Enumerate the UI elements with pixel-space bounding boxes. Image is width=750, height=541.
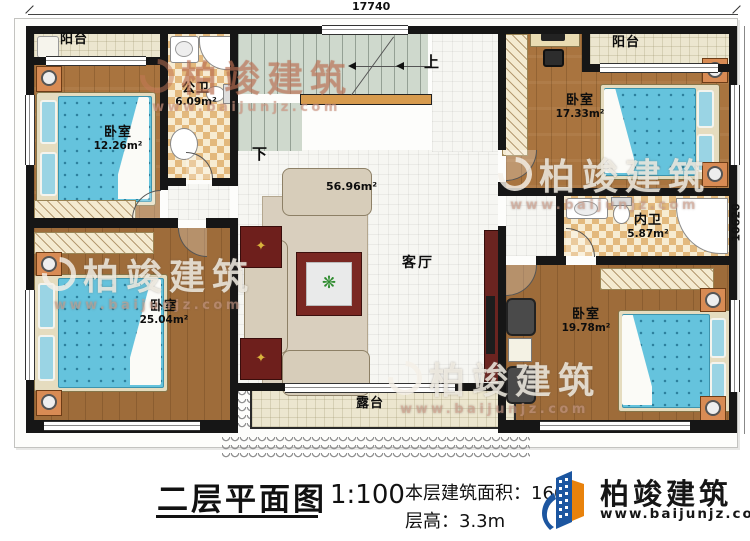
window xyxy=(600,63,718,73)
dimension-right-value: 10620 xyxy=(730,193,743,253)
wardrobe xyxy=(600,268,714,290)
brand-logo-icon xyxy=(536,466,596,536)
wall xyxy=(596,256,737,265)
plan-title: 二层平面图 xyxy=(157,474,327,519)
stairs-lower-flight xyxy=(238,103,302,151)
wall xyxy=(160,178,186,186)
dimension-top-value: 17740 xyxy=(352,0,390,13)
nightstand xyxy=(702,162,728,187)
window xyxy=(25,290,35,380)
wall xyxy=(455,383,506,391)
stair-arrow xyxy=(392,62,404,70)
nightstand xyxy=(36,66,62,92)
wall xyxy=(505,26,737,34)
window xyxy=(25,95,35,165)
bath-sink-bowl xyxy=(175,41,193,57)
wall xyxy=(498,188,737,196)
window xyxy=(44,421,200,431)
bed-sheet xyxy=(130,279,161,385)
bed-sheet xyxy=(622,315,652,405)
wall xyxy=(230,26,238,186)
dimension-tick-left xyxy=(25,5,33,13)
wall xyxy=(498,256,506,265)
dimension-right-line xyxy=(744,26,745,434)
stair-guide-line xyxy=(352,66,430,67)
wardrobe xyxy=(34,232,154,254)
room-label-bedroom-bottomleft: 卧室25.04m² xyxy=(124,300,204,326)
terrace-sliding-door xyxy=(285,383,455,393)
wall xyxy=(26,26,238,34)
nightstand xyxy=(36,390,62,416)
toilet-tank xyxy=(611,197,632,206)
window xyxy=(730,85,740,165)
brand-url: www.baijunjz.com xyxy=(600,506,750,522)
stairs-up-label: 上 xyxy=(424,54,439,71)
plan-scale: 1:100 xyxy=(330,480,405,510)
room-label-bedroom-topright: 卧室17.33m² xyxy=(540,94,620,120)
bed-pillow xyxy=(40,152,57,196)
stool xyxy=(543,49,564,67)
wall xyxy=(230,218,238,420)
armchair xyxy=(506,366,536,404)
dimension-tick-right xyxy=(732,5,740,13)
side-lamp-table xyxy=(508,338,532,362)
window xyxy=(46,56,146,66)
living-area-value: 56.96m² xyxy=(326,181,377,193)
room-label-terrace: 露台 xyxy=(356,397,384,412)
roof-tile-band xyxy=(222,437,530,459)
wardrobe xyxy=(34,200,136,220)
room-label-bedroom-bottomright: 卧室19.78m² xyxy=(546,308,626,334)
bed-pillow xyxy=(38,335,55,381)
hall-left-floor xyxy=(168,184,230,220)
balcony-basin xyxy=(37,36,59,58)
floor-height-text: 层高：3.3m xyxy=(405,507,505,533)
armchair xyxy=(506,298,536,336)
window xyxy=(322,25,408,35)
hall-upper-floor xyxy=(432,34,498,152)
window xyxy=(730,300,740,392)
wall xyxy=(498,26,506,150)
room-label-living: 客厅 xyxy=(402,256,434,272)
nightstand xyxy=(36,252,62,276)
stair-arrow xyxy=(344,62,356,70)
floor-plan-page: 17740 10620 xyxy=(0,0,750,541)
roof-tile-left-strip xyxy=(238,391,250,431)
wall xyxy=(556,196,564,256)
stair-handrail xyxy=(300,94,432,105)
room-label-balcony-right: 阳台 xyxy=(612,36,640,51)
wall xyxy=(536,256,566,265)
bed-pillow xyxy=(710,318,726,358)
room-label-balcony-left: 阳台 xyxy=(60,33,88,48)
dressing-table-mirror xyxy=(541,33,565,41)
window xyxy=(540,421,690,431)
stairs-down-label: 下 xyxy=(252,146,267,163)
hall-right-floor xyxy=(506,196,556,256)
side-table: ✦ xyxy=(240,338,282,380)
bed-pillow xyxy=(40,100,57,144)
room-label-inner-bath: 内卫5.87m² xyxy=(608,214,688,240)
room-label-public-bath: 公卫6.09m² xyxy=(165,82,227,108)
nightstand xyxy=(700,396,726,421)
wall xyxy=(26,218,178,228)
dimension-top-line xyxy=(28,14,738,15)
wall xyxy=(238,383,285,391)
side-table: ✦ xyxy=(240,226,282,268)
tv xyxy=(486,296,495,354)
room-label-bedroom-topleft: 卧室12.26m² xyxy=(78,126,158,152)
bed-pillow xyxy=(697,90,714,128)
bath-sink-bowl xyxy=(574,201,598,216)
bed-pillow xyxy=(38,283,55,329)
nightstand xyxy=(700,288,726,312)
title-underline xyxy=(156,515,318,518)
table-plant: ❋ xyxy=(306,262,352,306)
